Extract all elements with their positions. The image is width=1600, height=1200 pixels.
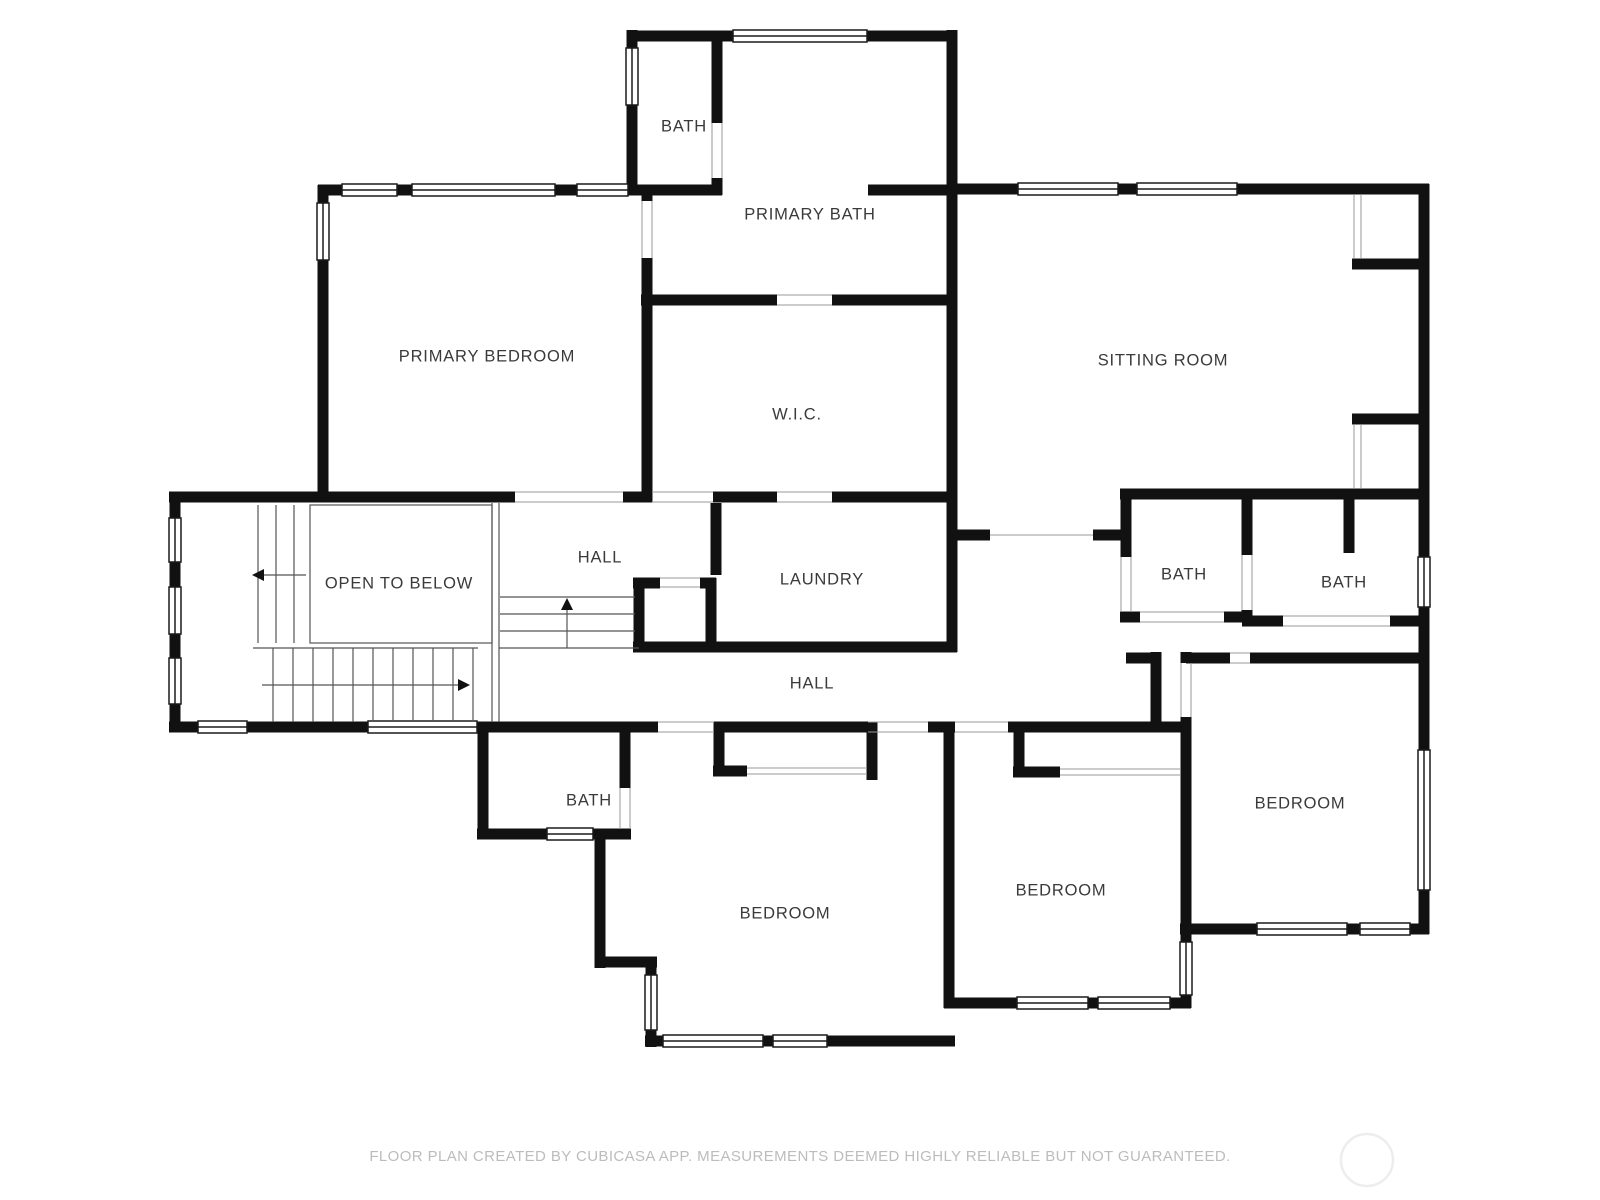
floorplan-drawing	[0, 0, 1600, 1200]
room-label-sitting-room: SITTING ROOM	[1098, 352, 1229, 371]
room-label-primary-bath: PRIMARY BATH	[744, 206, 876, 225]
room-label-bedroom-center: BEDROOM	[740, 905, 831, 924]
room-label-bath-mid-right: BATH	[1321, 574, 1367, 593]
room-label-bedroom-middle: BEDROOM	[1016, 882, 1107, 901]
room-label-hall-lower: HALL	[790, 675, 834, 694]
arrow-up-icon	[561, 598, 573, 610]
room-label-hall-upper: HALL	[578, 549, 622, 568]
footer-disclaimer: FLOOR PLAN CREATED BY CUBICASA APP. MEAS…	[0, 1148, 1600, 1165]
room-label-open-to-below: OPEN TO BELOW	[325, 575, 473, 594]
room-label-bedroom-right: BEDROOM	[1255, 795, 1346, 814]
room-label-bath-top: BATH	[661, 118, 707, 137]
room-label-bath-bottom: BATH	[566, 792, 612, 811]
floorplan-page: BATH PRIMARY BATH PRIMARY BEDROOM W.I.C.…	[0, 0, 1600, 1200]
stairs	[253, 503, 639, 722]
window-icon	[198, 30, 1410, 1047]
room-label-primary-bedroom: PRIMARY BEDROOM	[399, 348, 575, 367]
room-label-laundry: LAUNDRY	[780, 571, 864, 590]
windows	[169, 30, 1430, 1047]
room-label-wic: W.I.C.	[772, 406, 822, 425]
room-label-bath-mid-left: BATH	[1161, 566, 1207, 585]
arrow-right-icon	[458, 679, 470, 691]
walls	[169, 30, 1429, 1047]
